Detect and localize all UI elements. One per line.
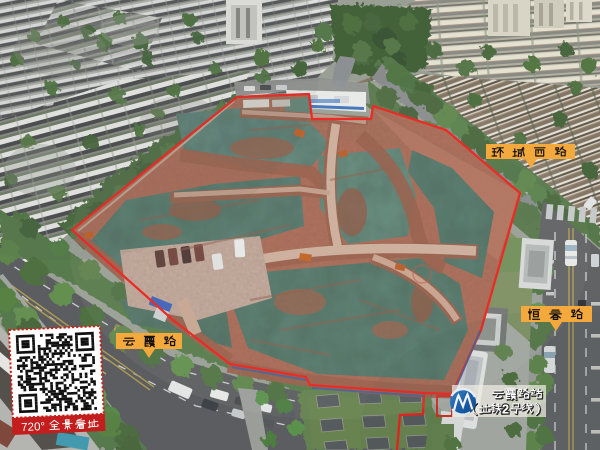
svg-text:2: 2 (502, 403, 509, 417)
svg-text:720°: 720° (21, 421, 45, 434)
